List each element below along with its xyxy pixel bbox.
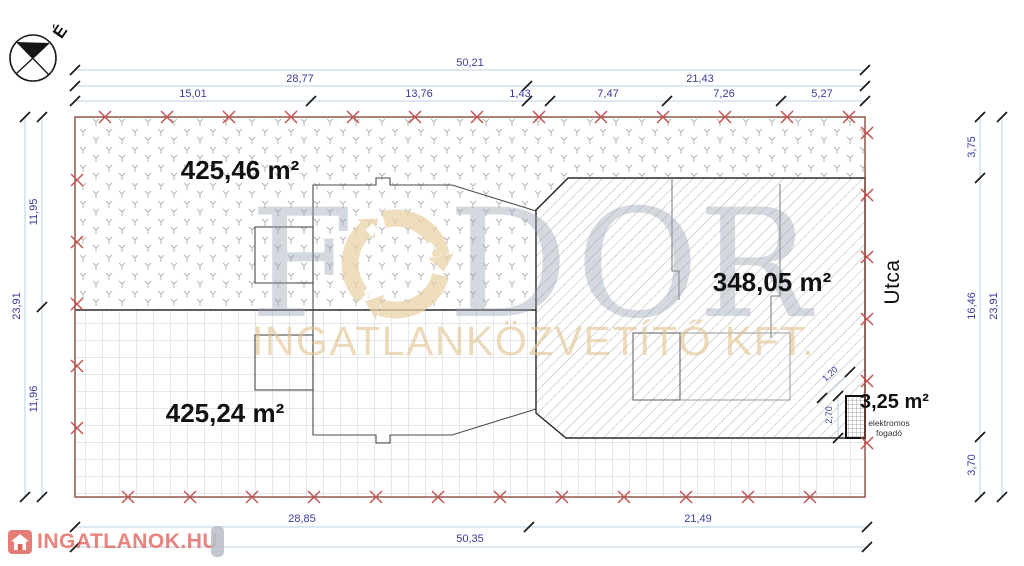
building-area-label: 348,05 m² — [672, 267, 872, 298]
dim-top-r3-0: 15,01 — [168, 88, 218, 100]
dim-top-r2-0: 28,77 — [275, 73, 325, 85]
dim-bottom-total: 50,35 — [445, 533, 495, 545]
dim-right-2: 3,70 — [966, 440, 978, 490]
annex-caption-line1: elektromos — [853, 418, 925, 428]
dim-annex-depth: 2,70 — [824, 390, 834, 440]
lawn-area-label: 425,46 m² — [140, 155, 340, 186]
dim-left-0: 11,95 — [28, 187, 40, 237]
dim-top-r3-2: 1,43 — [495, 88, 545, 100]
scrollbar-artifact — [211, 526, 224, 557]
compass-icon — [10, 35, 56, 81]
dim-bottom-0: 28,85 — [277, 513, 327, 525]
dim-bottom-1: 21,49 — [673, 513, 723, 525]
portal-logo-text: INGATLANOK.HU — [37, 530, 218, 554]
dim-top-r3-5: 5,27 — [797, 88, 847, 100]
dim-right-total: 23,91 — [988, 281, 1000, 331]
dim-top-r2-1: 21,43 — [675, 73, 725, 85]
dim-top-total: 50,21 — [445, 57, 495, 69]
street-label: Utca — [881, 247, 905, 317]
dim-right-1: 16,46 — [966, 281, 978, 331]
dim-top-r3-3: 7,47 — [583, 88, 633, 100]
dim-top-r3-1: 13,76 — [394, 88, 444, 100]
house-icon — [7, 527, 33, 555]
dim-top-r3-4: 7,26 — [699, 88, 749, 100]
annex-caption-line2: fogadó — [853, 428, 925, 438]
annex-area-label: 3,25 m² — [860, 391, 929, 414]
dim-right-0: 3,75 — [966, 122, 978, 172]
yard-area-label: 425,24 m² — [125, 398, 325, 429]
dim-left-total: 23,91 — [11, 281, 23, 331]
site-plan: F D O R INGATLANKÖZVETÍTŐ KFT. 425,46 m²… — [0, 0, 1024, 566]
main-building — [536, 178, 865, 438]
dim-left-1: 11,96 — [28, 374, 40, 424]
